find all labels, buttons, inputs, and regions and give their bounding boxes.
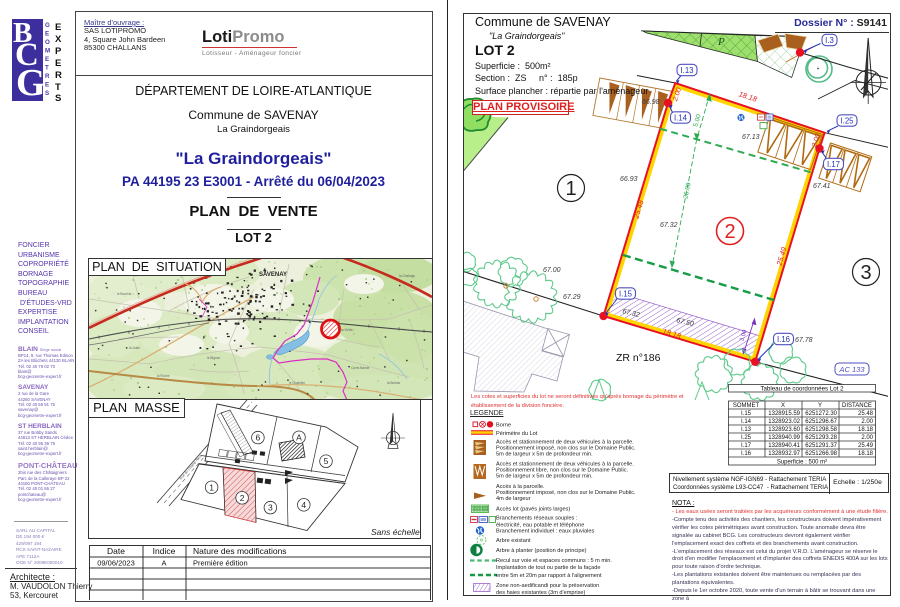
svg-text:R: R xyxy=(45,73,50,80)
svg-text:Arbre à planter (position de p: Arbre à planter (position de principe) xyxy=(496,548,587,554)
svg-text:I.17: I.17 xyxy=(741,443,752,449)
svg-text:Date: Date xyxy=(107,546,125,556)
svg-text:I.17: I.17 xyxy=(827,160,840,169)
svg-text:Accès lot (pavés joints larges: Accès lot (pavés joints larges) xyxy=(496,507,570,513)
svg-text:6251266.98: 6251266.98 xyxy=(805,451,837,457)
svg-text:la Vieille: la Vieille xyxy=(341,328,353,332)
svg-text:O: O xyxy=(45,39,50,46)
svg-text:A: A xyxy=(161,559,166,568)
svg-text:des haies existantes (3m d'emp: des haies existantes (3m d'emprise) xyxy=(496,590,586,596)
svg-text:2: 2 xyxy=(240,493,245,503)
svg-text:I.15: I.15 xyxy=(741,411,752,417)
svg-text:5m de largeur x 5m de profonde: 5m de largeur x 5m de profondeur min. xyxy=(496,474,593,480)
svg-text:1328940.41: 1328940.41 xyxy=(768,443,800,449)
svg-text:E: E xyxy=(55,58,61,69)
svg-text:la Roche: la Roche xyxy=(157,374,170,378)
svg-text:le Chatelier: le Chatelier xyxy=(289,381,306,385)
svg-text:E: E xyxy=(45,31,49,38)
svg-text:T: T xyxy=(45,65,49,72)
svg-text:la Juste: la Juste xyxy=(129,346,140,350)
svg-text:Superficie : 500 m²: Superficie : 500 m² xyxy=(777,460,827,466)
svg-text:1328923.02: 1328923.02 xyxy=(768,419,800,425)
svg-text:1328923.60: 1328923.60 xyxy=(768,427,800,433)
svg-text:67.78: 67.78 xyxy=(795,337,813,344)
svg-text:4m de largeur: 4m de largeur xyxy=(496,496,531,502)
svg-text:1: 1 xyxy=(565,178,576,200)
svg-text:Arbre existant: Arbre existant xyxy=(496,538,531,544)
svg-text:I.16: I.16 xyxy=(777,335,790,344)
svg-text:Recul sur voie et espaces comm: Recul sur voie et espaces communs : 5 m … xyxy=(496,558,612,564)
svg-text:I.13: I.13 xyxy=(741,427,752,433)
svg-text:Y: Y xyxy=(818,403,822,409)
svg-text:I.25: I.25 xyxy=(840,116,854,125)
svg-text:6251293.28: 6251293.28 xyxy=(805,435,837,441)
svg-text:Branchements réseaux souples :: Branchements réseaux souples : xyxy=(496,516,578,522)
svg-text:25.48: 25.48 xyxy=(858,411,874,417)
svg-text:4: 4 xyxy=(301,500,306,510)
svg-text:5: 5 xyxy=(324,456,329,466)
svg-text:E: E xyxy=(45,82,49,89)
svg-text:5m de largeur x 5m de profonde: 5m de largeur x 5m de profondeur min. xyxy=(496,452,593,458)
svg-text:G: G xyxy=(45,22,50,29)
svg-text:S: S xyxy=(45,90,49,97)
svg-text:A: A xyxy=(296,432,302,442)
svg-text:Borne: Borne xyxy=(496,423,511,429)
svg-text:18.18: 18.18 xyxy=(858,451,874,457)
svg-text:P: P xyxy=(55,46,62,57)
svg-text:67.41: 67.41 xyxy=(813,183,831,190)
svg-text:1328932.97: 1328932.97 xyxy=(768,451,800,457)
svg-text:E: E xyxy=(45,56,49,63)
svg-text:ZR n°186: ZR n°186 xyxy=(616,352,661,364)
svg-text:entre 5m et 20m par rapport à: entre 5m et 20m par rapport à l'aligneme… xyxy=(496,573,602,579)
svg-text:SOMMET: SOMMET xyxy=(733,403,760,409)
svg-text:2.00: 2.00 xyxy=(861,435,873,441)
svg-text:6251298.58: 6251298.58 xyxy=(805,427,837,433)
svg-text:2.00: 2.00 xyxy=(861,419,873,425)
svg-text:2: 2 xyxy=(724,221,735,243)
svg-text:25.49: 25.49 xyxy=(858,443,874,449)
svg-text:I.16: I.16 xyxy=(741,451,752,457)
svg-text:la Brelais: la Brelais xyxy=(387,381,401,385)
svg-text:6251272.30: 6251272.30 xyxy=(805,411,837,417)
svg-text:Zone non-aedificandi pour la p: Zone non-aedificandi pour la préservatio… xyxy=(496,583,599,589)
svg-text:T: T xyxy=(55,82,61,93)
svg-text:3: 3 xyxy=(268,503,273,513)
svg-text:1328915.59: 1328915.59 xyxy=(768,411,800,417)
svg-text:6251291.37: 6251291.37 xyxy=(805,443,837,449)
svg-text:6: 6 xyxy=(256,433,261,443)
svg-text:G: G xyxy=(16,62,46,102)
svg-text:Branchement individuel : eaux: Branchement individuel : eaux pluviales xyxy=(496,529,594,535)
svg-text:M: M xyxy=(45,48,50,55)
svg-text:1328940.99: 1328940.99 xyxy=(768,435,800,441)
svg-text:Implantation de tout ou partie: Implantation de tout ou partie de la faç… xyxy=(496,565,601,571)
svg-text:R: R xyxy=(55,70,62,81)
svg-text:P: P xyxy=(717,36,725,48)
svg-text:1: 1 xyxy=(209,482,214,492)
svg-text:67.29: 67.29 xyxy=(563,294,581,301)
svg-text:DISTANCE: DISTANCE xyxy=(842,403,872,409)
svg-text:le Bourhis: le Bourhis xyxy=(117,292,132,296)
svg-text:I.25: I.25 xyxy=(741,435,752,441)
svg-text:Indice: Indice xyxy=(153,546,176,556)
svg-text:6251296.67: 6251296.67 xyxy=(805,419,837,425)
svg-text:la Chataign: la Chataign xyxy=(399,274,415,278)
svg-text:X: X xyxy=(55,34,62,45)
svg-text:Première édition: Première édition xyxy=(193,559,248,568)
svg-text:I.15: I.15 xyxy=(619,289,633,298)
svg-text:I.14: I.14 xyxy=(674,113,688,122)
svg-text:09/06/2023: 09/06/2023 xyxy=(97,559,135,568)
svg-text:Tableau de coordonnées Lot 2: Tableau de coordonnées Lot 2 xyxy=(760,385,844,392)
svg-text:18.18: 18.18 xyxy=(858,427,874,433)
svg-text:I.14: I.14 xyxy=(741,419,752,425)
svg-text:67.32: 67.32 xyxy=(660,222,678,229)
svg-text:Périmètre du Lot: Périmètre du Lot xyxy=(496,431,538,437)
svg-text:SAVENAY: SAVENAY xyxy=(259,272,287,278)
svg-text:66.98: 66.98 xyxy=(642,99,660,106)
svg-text:67.13: 67.13 xyxy=(742,134,760,141)
svg-text:le Bignon: le Bignon xyxy=(207,356,221,360)
svg-text:X: X xyxy=(781,403,785,409)
svg-text:électricité, eau potable et té: électricité, eau potable et téléphone xyxy=(496,523,584,529)
svg-text:S: S xyxy=(55,93,61,102)
svg-text:3: 3 xyxy=(860,262,871,284)
svg-text:18.18: 18.18 xyxy=(737,89,758,104)
svg-text:I.3: I.3 xyxy=(825,36,834,45)
svg-text:Coets Bande: Coets Bande xyxy=(351,366,370,370)
svg-text:AC 133: AC 133 xyxy=(838,365,865,374)
svg-text:67.00: 67.00 xyxy=(543,267,561,274)
svg-text:66.93: 66.93 xyxy=(620,176,638,183)
svg-text:E: E xyxy=(55,22,61,33)
svg-text:Nature des modifications: Nature des modifications xyxy=(193,546,287,556)
